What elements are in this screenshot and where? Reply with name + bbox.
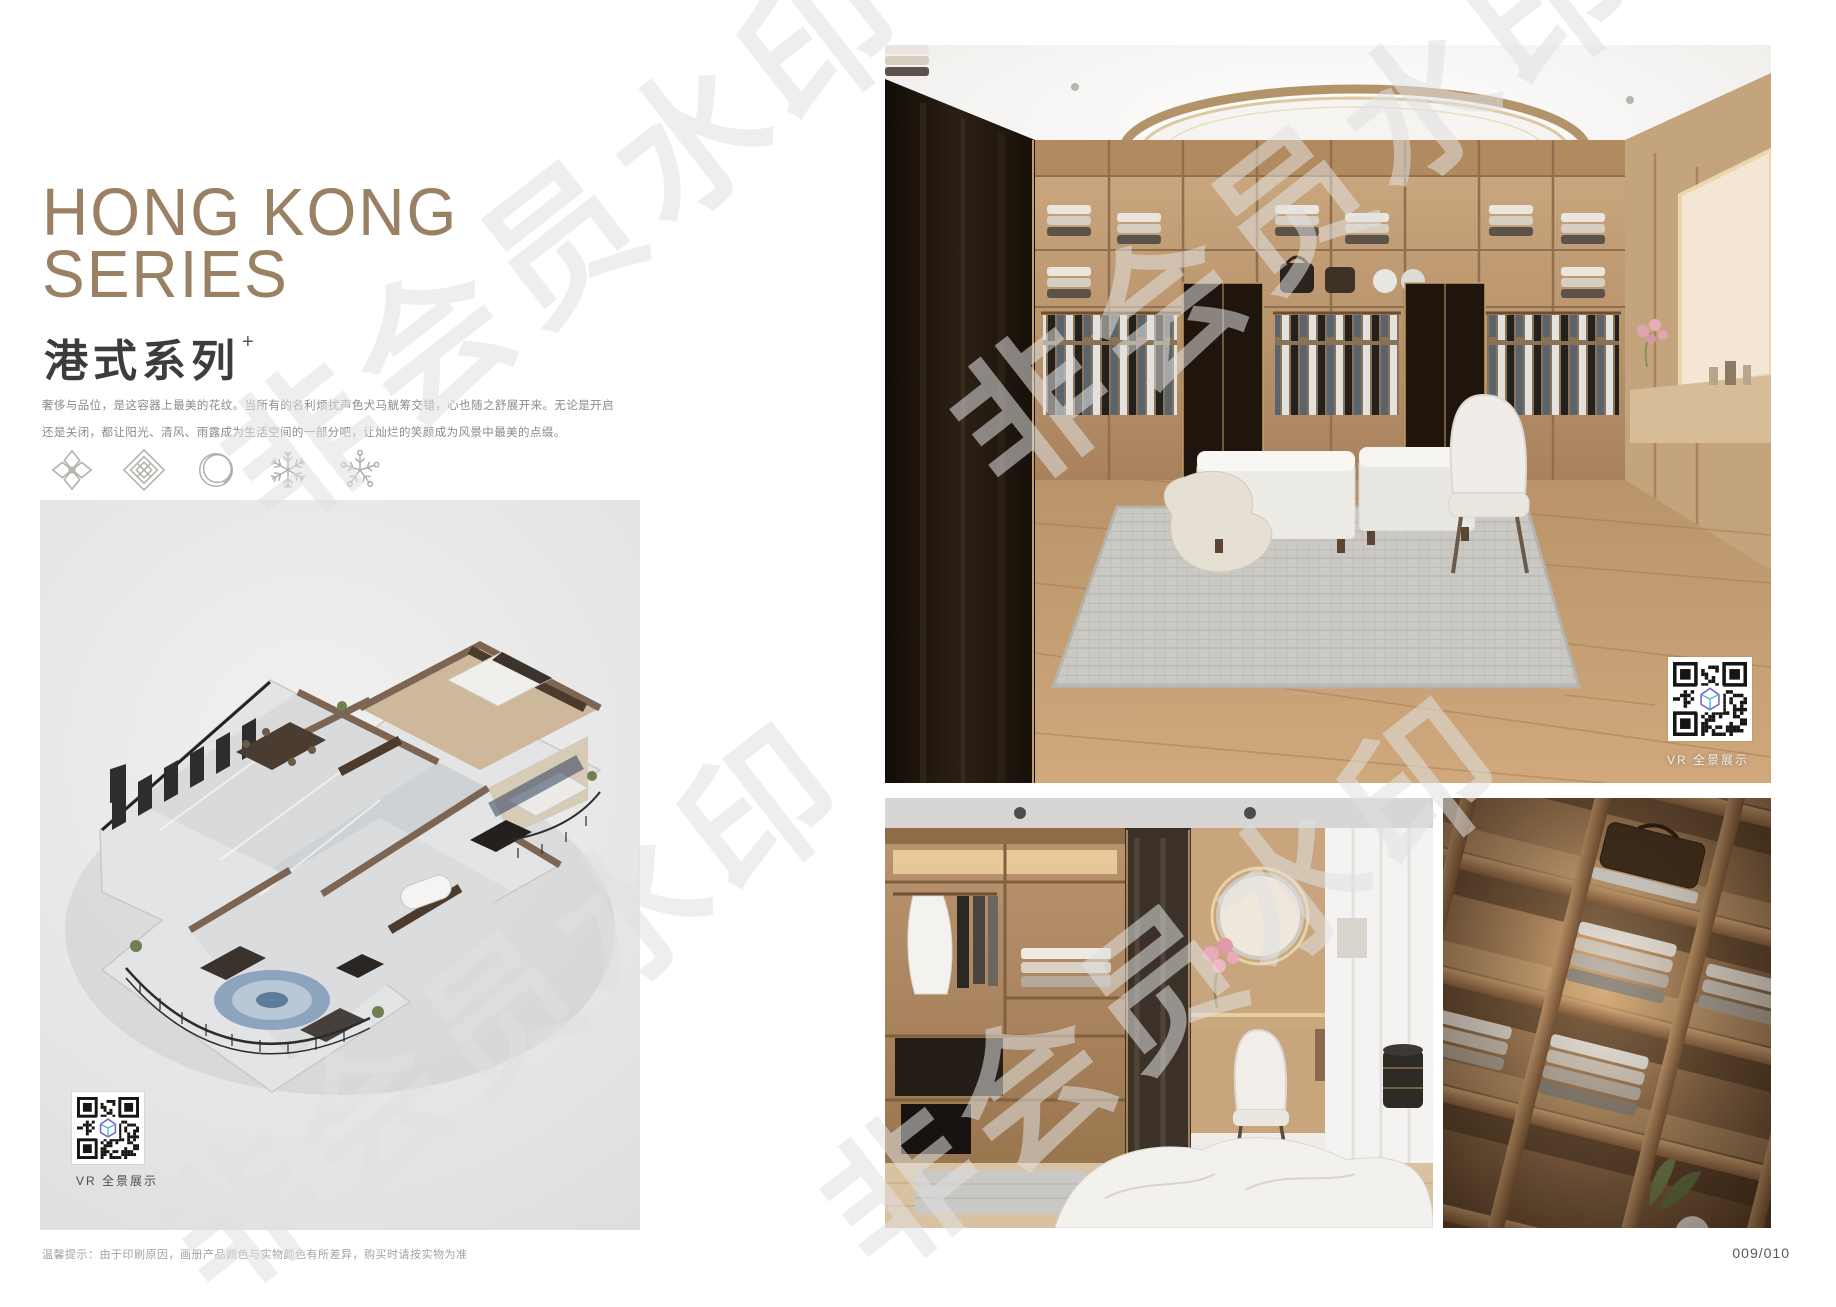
shelf-closeup-photo [1443,798,1771,1228]
series-description: 奢侈与品位，是这容器上最美的花纹。当所有的名利烦扰声色犬马觥筹交错，心也随之舒展… [42,393,614,447]
series-title-line1: HONG KONG [42,180,458,244]
spotlight [1071,83,1079,91]
drum-side-table [1383,1044,1423,1108]
mirror-cabinet-divider [1125,828,1191,1163]
folded-clothes-stack [885,45,929,76]
walkin-closet-photo: VR 全景展示 [885,45,1771,783]
downlight [1244,807,1256,819]
floorplan-vr-qr-code [72,1092,144,1164]
ornate-flower-icon [50,448,94,492]
series-subtitle-text: 港式系列 [44,337,240,386]
brush-ring-icon [194,448,238,492]
ceiling-strip [885,798,1433,828]
small-rug [915,1170,1085,1214]
downlight [1014,807,1026,819]
main-vr-qr-code [1668,657,1752,741]
diamond-weave-icon [122,448,166,492]
dressing-corner-photo [885,798,1433,1228]
wall-frame [1337,918,1367,958]
footer-note: 温馨提示：由于印刷原因，画册产品颜色与实物颜色有所差异，购买时请按实物为准 [42,1246,468,1262]
star-service-icon [338,448,382,492]
spotlight [1626,96,1634,104]
subtitle-plus-mark: + [242,331,259,353]
hanging-clothes-rows [1041,313,1621,415]
floorplan-render: VR 全景展示 [40,500,640,1230]
series-title: HONG KONG SERIES [42,181,458,305]
storage-box [901,1104,971,1154]
catalog-spread: HONG KONG SERIES 港式系列+ 奢侈与品位，是这容器上最美的花纹。… [0,0,1836,1307]
left-dark-glass-wardrobe [885,79,1035,783]
page-number: 009/010 [1732,1245,1790,1261]
closet-illustration [885,45,1771,783]
series-subtitle-cn: 港式系列+ [44,325,259,389]
floorplan-vr-caption: VR 全景展示 [76,1172,158,1189]
main-vr-caption: VR 全景展示 [1667,751,1749,768]
qr-pattern [77,1097,139,1159]
dressing-illustration [885,798,1433,1228]
left-wardrobe [885,828,1125,1163]
series-title-line2: SERIES [42,242,458,306]
right-white-wall [1325,828,1433,1163]
vignette [1443,798,1771,1228]
snowflake-icon [266,448,310,492]
dark-drawers [895,1038,1003,1096]
qr-pattern [1673,662,1747,736]
shelf-illustration [1443,798,1771,1228]
